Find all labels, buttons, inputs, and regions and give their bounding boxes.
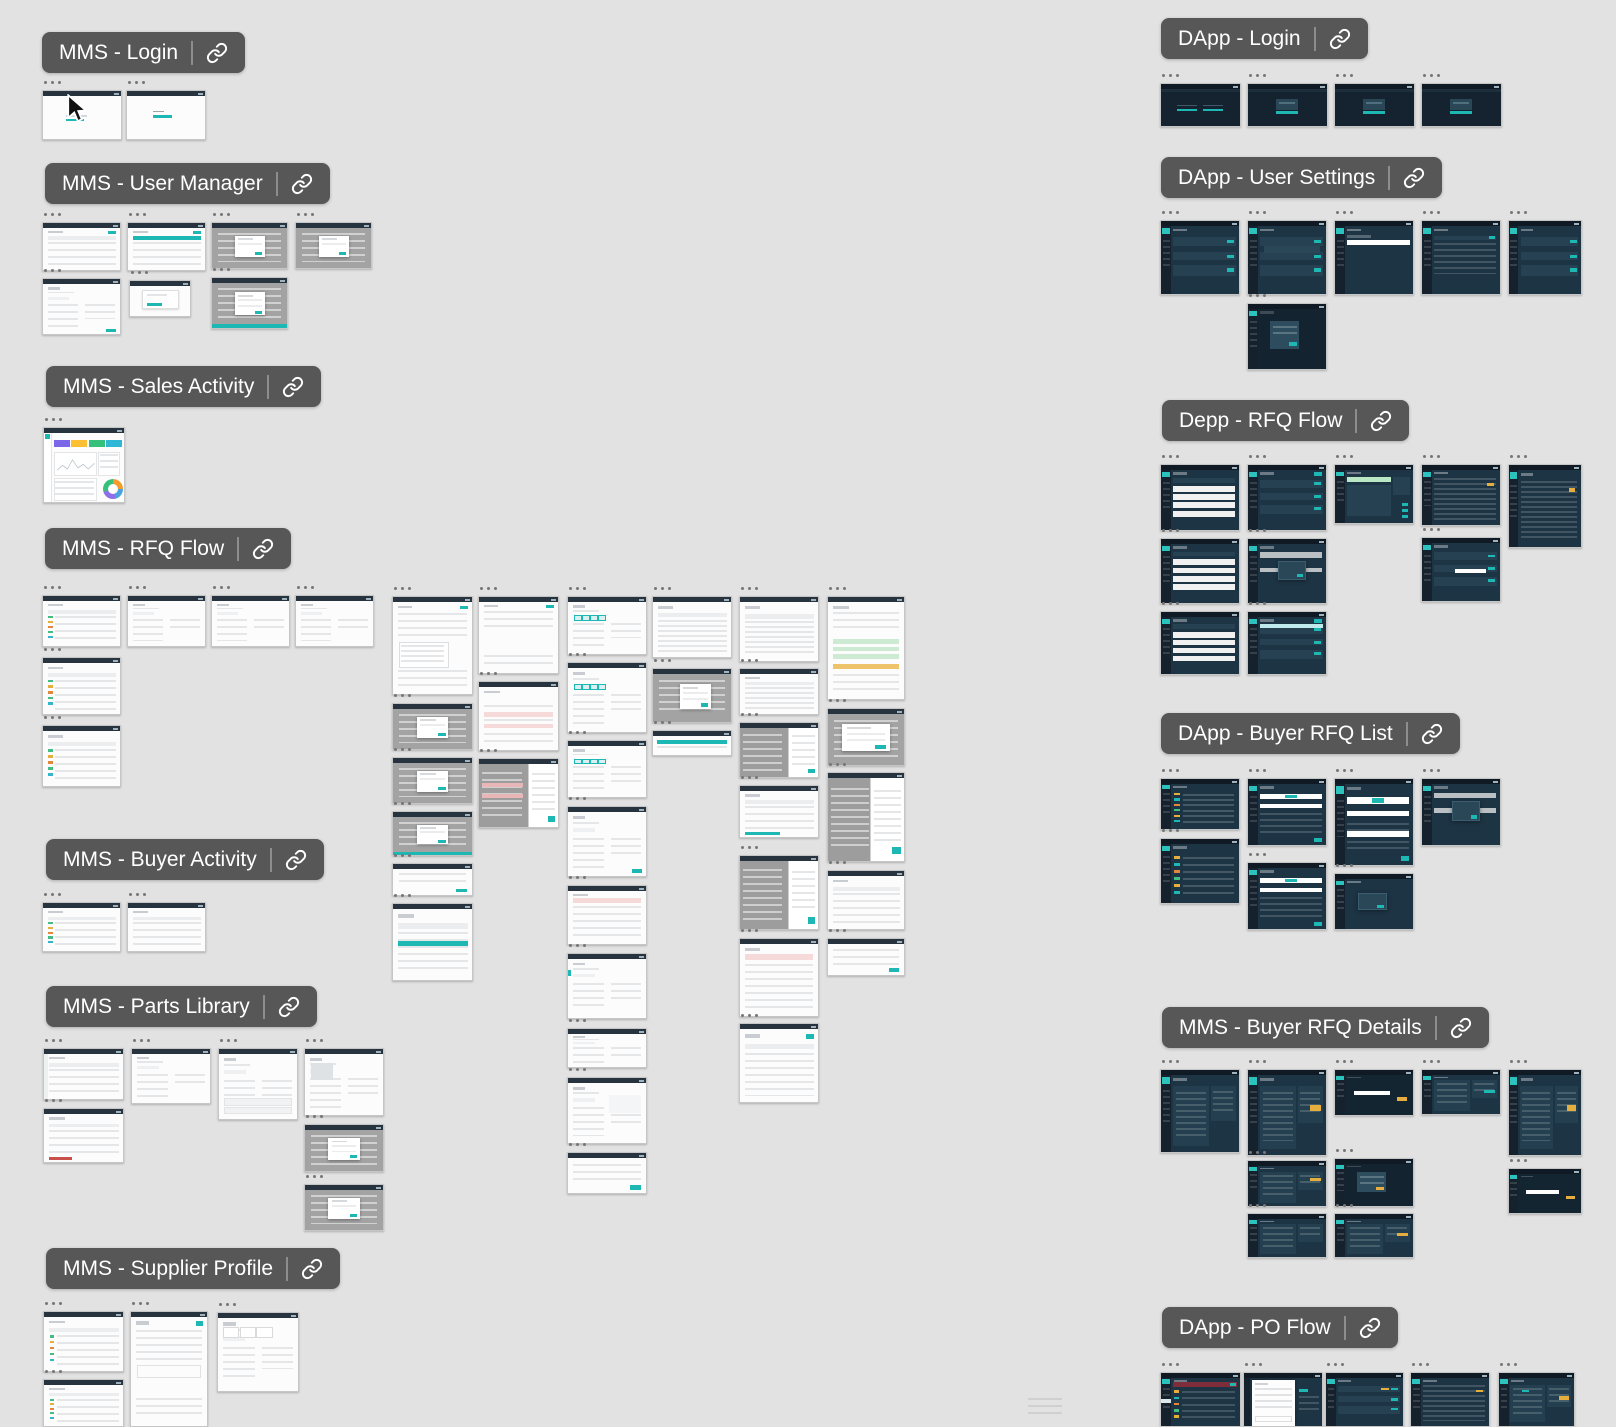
screen-thumbnail[interactable] bbox=[1508, 1069, 1582, 1156]
screen-thumbnail[interactable] bbox=[567, 740, 647, 798]
screen-thumbnail[interactable] bbox=[42, 595, 121, 647]
frame-title-dots[interactable] bbox=[306, 1115, 323, 1118]
link-icon[interactable] bbox=[1359, 1317, 1381, 1339]
link-icon[interactable] bbox=[301, 1258, 323, 1280]
frame-title-dots[interactable] bbox=[480, 672, 497, 675]
frame-title-dots[interactable] bbox=[133, 1039, 150, 1042]
frame-title-dots[interactable] bbox=[1423, 211, 1440, 214]
screen-thumbnail[interactable] bbox=[739, 855, 819, 930]
frame-title-dots[interactable] bbox=[654, 721, 671, 724]
screen-thumbnail[interactable] bbox=[567, 1152, 647, 1194]
frame-title-dots[interactable] bbox=[1162, 769, 1179, 772]
screen-thumbnail[interactable] bbox=[211, 222, 288, 269]
section-label-pill[interactable]: MMS - User Manager bbox=[45, 163, 330, 204]
dot bbox=[1343, 1204, 1346, 1207]
frame-title-dots[interactable] bbox=[213, 268, 230, 271]
screen-thumbnail[interactable] bbox=[739, 1023, 819, 1103]
deco bbox=[1182, 1391, 1235, 1393]
frame-title-dots[interactable] bbox=[569, 1019, 586, 1022]
screen-thumbnail[interactable] bbox=[127, 222, 206, 271]
screen-thumbnail[interactable] bbox=[1247, 1160, 1327, 1207]
frame-title-dots[interactable] bbox=[569, 1068, 586, 1071]
screen-thumbnail[interactable] bbox=[295, 595, 374, 647]
screen-thumbnail[interactable] bbox=[1334, 1069, 1414, 1116]
screen-thumbnail[interactable] bbox=[567, 953, 647, 1019]
frame-title-dots[interactable] bbox=[1249, 529, 1266, 532]
section-label-pill[interactable]: Depp - RFQ Flow bbox=[1162, 400, 1409, 441]
screen-thumbnail[interactable] bbox=[1160, 838, 1240, 904]
frame-title-dots[interactable] bbox=[394, 587, 411, 590]
screen-thumbnail[interactable] bbox=[43, 1379, 124, 1427]
screen-thumbnail[interactable] bbox=[392, 596, 473, 695]
screen-thumbnail[interactable] bbox=[652, 668, 732, 723]
deco bbox=[657, 740, 727, 743]
screen-thumbnail[interactable] bbox=[1334, 220, 1414, 295]
frame-title-dots[interactable] bbox=[1249, 211, 1266, 214]
frame-title-dots[interactable] bbox=[1162, 529, 1179, 532]
frame-title-dots[interactable] bbox=[741, 587, 758, 590]
frame-title-dots[interactable] bbox=[129, 213, 146, 216]
screen-thumbnail[interactable] bbox=[1247, 778, 1327, 846]
link-icon[interactable] bbox=[1421, 723, 1443, 745]
frame-title-dots[interactable] bbox=[45, 1370, 62, 1373]
frame-title-dots[interactable] bbox=[129, 893, 146, 896]
frame-title-dots[interactable] bbox=[44, 648, 61, 651]
deco bbox=[1347, 1221, 1360, 1223]
frame-title-dots[interactable] bbox=[1336, 455, 1353, 458]
dot bbox=[1249, 1060, 1252, 1063]
frame-title-dots[interactable] bbox=[45, 1302, 62, 1305]
screen-thumbnail[interactable] bbox=[1160, 1372, 1241, 1427]
screen-thumbnail[interactable] bbox=[1247, 303, 1327, 370]
screen-thumbnail[interactable] bbox=[739, 938, 819, 1017]
frame-title-dots[interactable] bbox=[1423, 455, 1440, 458]
screen-thumbnail[interactable] bbox=[1160, 464, 1240, 531]
screen-thumbnail[interactable] bbox=[295, 222, 372, 269]
frame-title-dots[interactable] bbox=[44, 213, 61, 216]
deco bbox=[1452, 801, 1481, 821]
screen-thumbnail[interactable] bbox=[304, 1124, 384, 1172]
link-icon[interactable] bbox=[291, 173, 313, 195]
frame-title-dots[interactable] bbox=[1249, 1151, 1266, 1154]
frame-title-dots[interactable] bbox=[829, 699, 846, 702]
frame-title-dots[interactable] bbox=[45, 418, 62, 421]
frame-title-dots[interactable] bbox=[394, 748, 411, 751]
dot bbox=[51, 269, 54, 272]
screen-thumbnail[interactable] bbox=[1247, 862, 1327, 930]
screen-thumbnail[interactable] bbox=[567, 885, 647, 945]
section-label-pill[interactable]: DApp - User Settings bbox=[1161, 157, 1442, 198]
screen-thumbnail[interactable] bbox=[1247, 464, 1327, 531]
link-icon[interactable] bbox=[1403, 167, 1425, 189]
screen-thumbnail[interactable] bbox=[1160, 83, 1241, 127]
screen-thumbnail[interactable] bbox=[1325, 1372, 1404, 1427]
screen-thumbnail[interactable] bbox=[43, 1311, 124, 1372]
frame-title-dots[interactable] bbox=[829, 861, 846, 864]
screen-thumbnail[interactable] bbox=[130, 1311, 208, 1427]
screen-thumbnail[interactable] bbox=[1247, 611, 1327, 675]
screen-thumbnail[interactable] bbox=[1243, 1372, 1323, 1427]
dot bbox=[408, 894, 411, 897]
screen-thumbnail[interactable] bbox=[739, 596, 819, 662]
screen-thumbnail[interactable] bbox=[1421, 537, 1501, 602]
frame-title-dots[interactable] bbox=[306, 1175, 323, 1178]
screen-thumbnail[interactable] bbox=[392, 811, 473, 856]
screen-thumbnail[interactable] bbox=[1247, 220, 1327, 295]
dot bbox=[133, 1039, 136, 1042]
screen-thumbnail[interactable] bbox=[127, 595, 206, 647]
dot bbox=[1336, 74, 1339, 77]
frame-title-dots[interactable] bbox=[829, 763, 846, 766]
screen-thumbnail[interactable] bbox=[827, 772, 905, 862]
link-icon[interactable] bbox=[285, 849, 307, 871]
frame-title-dots[interactable] bbox=[220, 1039, 237, 1042]
screen-thumbnail[interactable] bbox=[211, 595, 290, 647]
screen-thumbnail[interactable] bbox=[43, 427, 125, 503]
screen-thumbnail[interactable] bbox=[567, 806, 647, 877]
frame-title-dots[interactable] bbox=[1336, 1204, 1353, 1207]
section-label-pill[interactable]: DApp - Login bbox=[1161, 18, 1368, 59]
link-icon[interactable] bbox=[206, 42, 228, 64]
link-icon[interactable] bbox=[282, 376, 304, 398]
screen-thumbnail[interactable] bbox=[1160, 220, 1240, 295]
screen-thumbnail[interactable] bbox=[42, 278, 121, 335]
dot bbox=[1343, 1060, 1346, 1063]
deco bbox=[1260, 813, 1322, 835]
frame-title-dots[interactable] bbox=[1423, 1060, 1440, 1063]
deco bbox=[1336, 228, 1344, 234]
frame-title-dots[interactable] bbox=[1336, 864, 1353, 867]
screen-thumbnail[interactable] bbox=[1421, 220, 1501, 295]
screen-thumbnail[interactable] bbox=[739, 722, 819, 778]
thumbnail-content bbox=[1248, 784, 1326, 845]
dot bbox=[1437, 455, 1440, 458]
frame-title-dots[interactable] bbox=[1327, 1363, 1344, 1366]
frame-title-dots[interactable] bbox=[45, 1039, 62, 1042]
deco bbox=[1360, 1176, 1384, 1184]
frame-title-dots[interactable] bbox=[1412, 1363, 1429, 1366]
frame-title-dots[interactable] bbox=[44, 893, 61, 896]
frame-title-dots[interactable] bbox=[1162, 1363, 1179, 1366]
deco bbox=[1260, 229, 1273, 232]
link-icon[interactable] bbox=[1370, 410, 1392, 432]
deco bbox=[745, 614, 814, 619]
screen-thumbnail[interactable] bbox=[1334, 1158, 1414, 1207]
screen-thumbnail[interactable] bbox=[127, 902, 206, 952]
dot bbox=[401, 854, 404, 857]
frame-title-dots[interactable] bbox=[297, 586, 314, 589]
screen-thumbnail[interactable] bbox=[42, 657, 121, 715]
deco bbox=[745, 832, 780, 835]
frame-title-dots[interactable] bbox=[569, 731, 586, 734]
screen-thumbnail[interactable] bbox=[42, 902, 121, 952]
screen-thumbnail[interactable] bbox=[1334, 873, 1414, 930]
deco bbox=[262, 1080, 292, 1100]
dot bbox=[1256, 1060, 1259, 1063]
dot bbox=[1514, 1363, 1517, 1366]
frame-title-dots[interactable] bbox=[1162, 602, 1179, 605]
frame-title-dots[interactable] bbox=[1423, 74, 1440, 77]
screen-thumbnail[interactable] bbox=[478, 758, 559, 828]
screen-thumbnail[interactable] bbox=[42, 725, 121, 787]
screen-thumbnail[interactable] bbox=[211, 277, 288, 329]
section-label-pill[interactable]: MMS - Buyer Activity bbox=[46, 839, 324, 880]
frame-title-dots[interactable] bbox=[394, 694, 411, 697]
frame-title-dots[interactable] bbox=[1162, 455, 1179, 458]
frame-title-dots[interactable] bbox=[44, 586, 61, 589]
screen-thumbnail[interactable] bbox=[392, 903, 473, 981]
frame-title-dots[interactable] bbox=[219, 1303, 236, 1306]
frame-title-dots[interactable] bbox=[129, 586, 146, 589]
pill-divider bbox=[270, 848, 272, 872]
frame-title-dots[interactable] bbox=[1249, 294, 1266, 297]
frame-title-dots[interactable] bbox=[44, 81, 61, 84]
frame-title-dots[interactable] bbox=[741, 929, 758, 932]
screen-thumbnail[interactable] bbox=[1334, 464, 1414, 524]
frame-title-dots[interactable] bbox=[306, 1039, 323, 1042]
screen-thumbnail[interactable] bbox=[827, 596, 905, 700]
frame-title-dots[interactable] bbox=[44, 716, 61, 719]
screen-thumbnail[interactable] bbox=[1421, 83, 1502, 127]
deco bbox=[49, 1157, 73, 1160]
screen-thumbnail[interactable] bbox=[1421, 464, 1501, 526]
deco bbox=[1173, 1086, 1209, 1146]
screen-thumbnail[interactable] bbox=[652, 596, 732, 658]
frame-title-dots[interactable] bbox=[1249, 1204, 1266, 1207]
screen-thumbnail[interactable] bbox=[567, 1028, 647, 1068]
screen-thumbnail[interactable] bbox=[217, 1312, 299, 1392]
frame-title-dots[interactable] bbox=[132, 1302, 149, 1305]
screen-thumbnail[interactable] bbox=[1334, 83, 1415, 127]
frame-title-dots[interactable] bbox=[1336, 1060, 1353, 1063]
deco bbox=[1521, 473, 1533, 476]
screen-thumbnail[interactable] bbox=[1421, 778, 1501, 846]
dot bbox=[1336, 769, 1339, 772]
deco bbox=[1248, 89, 1327, 92]
dot bbox=[220, 586, 223, 589]
dot bbox=[843, 587, 846, 590]
frame-title-dots[interactable] bbox=[1510, 1060, 1527, 1063]
frame-title-dots[interactable] bbox=[480, 749, 497, 752]
section-label-pill[interactable]: MMS - Parts Library bbox=[46, 986, 317, 1027]
frame-title-dots[interactable] bbox=[741, 846, 758, 849]
frame-title-dots[interactable] bbox=[394, 802, 411, 805]
deco bbox=[1249, 546, 1257, 551]
thumbnail-content bbox=[653, 674, 731, 722]
link-icon[interactable] bbox=[1450, 1017, 1472, 1039]
deco bbox=[1173, 472, 1186, 474]
frame-title-dots[interactable] bbox=[569, 653, 586, 656]
screen-thumbnail[interactable] bbox=[1247, 1069, 1327, 1156]
section-label: MMS - Supplier Profile bbox=[63, 1256, 273, 1281]
deco bbox=[1173, 640, 1235, 646]
screen-thumbnail[interactable] bbox=[827, 870, 905, 930]
frame-title-dots[interactable] bbox=[1249, 853, 1266, 856]
screen-thumbnail[interactable] bbox=[392, 703, 473, 750]
screen-thumbnail[interactable] bbox=[567, 662, 647, 733]
thumbnail-content bbox=[393, 909, 472, 980]
screen-thumbnail[interactable] bbox=[43, 1108, 124, 1163]
thumbnail-content bbox=[44, 1317, 123, 1371]
frame-title-dots[interactable] bbox=[1423, 528, 1440, 531]
screen-thumbnail[interactable] bbox=[1508, 220, 1582, 295]
frame-title-dots[interactable] bbox=[1162, 74, 1179, 77]
screen-thumbnail[interactable] bbox=[1334, 1213, 1414, 1258]
section-label-pill[interactable]: MMS - Login bbox=[42, 32, 245, 73]
dot bbox=[494, 672, 497, 675]
dot bbox=[59, 1302, 62, 1305]
frame-title-dots[interactable] bbox=[569, 876, 586, 879]
screen-thumbnail[interactable] bbox=[1334, 778, 1414, 866]
screen-thumbnail[interactable] bbox=[567, 1077, 647, 1144]
frame-title-dots[interactable] bbox=[480, 587, 497, 590]
screen-thumbnail[interactable] bbox=[304, 1048, 384, 1116]
dot bbox=[1524, 211, 1527, 214]
deco bbox=[100, 454, 118, 472]
section-label-pill[interactable]: MMS - Buyer RFQ Details bbox=[1162, 1007, 1489, 1048]
dot bbox=[1169, 1060, 1172, 1063]
frame-title-dots[interactable] bbox=[1336, 769, 1353, 772]
frame-title-dots[interactable] bbox=[45, 1099, 62, 1102]
frame-title-dots[interactable] bbox=[131, 271, 148, 274]
frame-title-dots[interactable] bbox=[1423, 769, 1440, 772]
screen-thumbnail[interactable] bbox=[1247, 1213, 1327, 1258]
frame-title-dots[interactable] bbox=[569, 797, 586, 800]
screen-thumbnail[interactable] bbox=[42, 222, 121, 271]
frame-title-dots[interactable] bbox=[394, 854, 411, 857]
screen-thumbnail[interactable] bbox=[478, 681, 559, 751]
link-icon[interactable] bbox=[252, 538, 274, 560]
frame-title-dots[interactable] bbox=[741, 1014, 758, 1017]
dot bbox=[843, 699, 846, 702]
screen-thumbnail[interactable] bbox=[739, 785, 819, 838]
frame-title-dots[interactable] bbox=[1162, 1060, 1179, 1063]
deco bbox=[1174, 1403, 1179, 1405]
frame-title-dots[interactable] bbox=[1249, 1060, 1266, 1063]
screen-thumbnail[interactable] bbox=[129, 280, 191, 317]
frame-title-dots[interactable] bbox=[394, 894, 411, 897]
screen-thumbnail[interactable] bbox=[131, 1048, 211, 1104]
dot bbox=[401, 894, 404, 897]
screen-thumbnail[interactable] bbox=[1498, 1372, 1575, 1427]
pill-divider bbox=[1344, 1316, 1346, 1340]
frame-title-dots[interactable] bbox=[1162, 829, 1179, 832]
screen-thumbnail[interactable] bbox=[1421, 1069, 1501, 1115]
frame-title-dots[interactable] bbox=[1249, 769, 1266, 772]
screen-thumbnail[interactable] bbox=[1247, 83, 1328, 127]
deco bbox=[1314, 838, 1323, 842]
screen-thumbnail[interactable] bbox=[652, 730, 732, 756]
frame-title-dots[interactable] bbox=[654, 659, 671, 662]
screen-thumbnail[interactable] bbox=[478, 596, 559, 674]
deco bbox=[106, 440, 122, 448]
screen-thumbnail[interactable] bbox=[1160, 538, 1240, 604]
frame-title-dots[interactable] bbox=[569, 944, 586, 947]
frame-title-dots[interactable] bbox=[1249, 602, 1266, 605]
section-label-pill[interactable]: DApp - Buyer RFQ List bbox=[1161, 713, 1460, 754]
frame-title-dots[interactable] bbox=[741, 659, 758, 662]
link-icon[interactable] bbox=[1329, 28, 1351, 50]
thumbnail-content bbox=[1509, 1174, 1581, 1213]
screen-thumbnail[interactable] bbox=[1508, 464, 1582, 548]
frame-title-dots[interactable] bbox=[569, 587, 586, 590]
deco bbox=[50, 1408, 55, 1410]
dot bbox=[1343, 864, 1346, 867]
thumbnail-content bbox=[740, 1029, 818, 1102]
frame-title-dots[interactable] bbox=[128, 81, 145, 84]
frame-title-dots[interactable] bbox=[1510, 455, 1527, 458]
frame-title-dots[interactable] bbox=[297, 213, 314, 216]
deco bbox=[1570, 268, 1576, 271]
frame-title-dots[interactable] bbox=[1336, 1149, 1353, 1152]
frame-title-dots[interactable] bbox=[1249, 74, 1266, 77]
frame-title-dots[interactable] bbox=[654, 587, 671, 590]
deco bbox=[223, 1327, 239, 1338]
screen-thumbnail[interactable] bbox=[1160, 778, 1240, 830]
frame-title-dots[interactable] bbox=[1336, 74, 1353, 77]
screen-thumbnail[interactable] bbox=[827, 938, 905, 976]
dot bbox=[836, 929, 839, 932]
frame-title-dots[interactable] bbox=[1510, 211, 1527, 214]
frame-title-dots[interactable] bbox=[44, 269, 61, 272]
frame-title-dots[interactable] bbox=[213, 213, 230, 216]
screen-thumbnail[interactable] bbox=[1247, 538, 1327, 604]
screen-thumbnail[interactable] bbox=[1160, 611, 1240, 675]
thumbnail-content bbox=[479, 687, 558, 750]
frame-title-dots[interactable] bbox=[213, 586, 230, 589]
dot bbox=[1176, 829, 1179, 832]
deco bbox=[1434, 1080, 1470, 1110]
link-icon[interactable] bbox=[278, 996, 300, 1018]
frame-title-dots[interactable] bbox=[569, 1143, 586, 1146]
screen-thumbnail[interactable] bbox=[43, 1048, 124, 1100]
screen-thumbnail[interactable] bbox=[1410, 1372, 1490, 1427]
section-label-pill[interactable]: MMS - Supplier Profile bbox=[46, 1248, 340, 1289]
screen-thumbnail[interactable] bbox=[392, 863, 473, 896]
frame-title-dots[interactable] bbox=[1162, 211, 1179, 214]
dot bbox=[1343, 74, 1346, 77]
section-label-pill[interactable]: MMS - RFQ Flow bbox=[45, 528, 291, 569]
screen-thumbnail[interactable] bbox=[392, 757, 473, 804]
frame-title-dots[interactable] bbox=[829, 587, 846, 590]
screen-thumbnail[interactable] bbox=[827, 708, 905, 766]
section-label-pill[interactable]: DApp - PO Flow bbox=[1162, 1307, 1398, 1348]
deco bbox=[1260, 804, 1322, 808]
frame-title-dots[interactable] bbox=[829, 929, 846, 932]
section-label-pill[interactable]: MMS - Sales Activity bbox=[46, 366, 321, 407]
dot bbox=[45, 418, 48, 421]
deco bbox=[1260, 870, 1273, 872]
screen-thumbnail[interactable] bbox=[126, 90, 206, 140]
dot bbox=[1169, 829, 1172, 832]
frame-title-dots[interactable] bbox=[1245, 1363, 1262, 1366]
deco bbox=[136, 1330, 203, 1361]
frame-title-dots[interactable] bbox=[1510, 1159, 1527, 1162]
deco bbox=[1183, 885, 1235, 887]
screen-thumbnail[interactable] bbox=[304, 1184, 384, 1231]
deco bbox=[1163, 482, 1170, 509]
screen-thumbnail[interactable] bbox=[218, 1048, 298, 1120]
frame-title-dots[interactable] bbox=[1249, 455, 1266, 458]
screen-thumbnail[interactable] bbox=[1160, 1069, 1240, 1153]
screen-thumbnail[interactable] bbox=[739, 668, 819, 715]
frame-title-dots[interactable] bbox=[1500, 1363, 1517, 1366]
frame-title-dots[interactable] bbox=[741, 776, 758, 779]
screen-thumbnail[interactable] bbox=[1508, 1168, 1582, 1214]
frame-title-dots[interactable] bbox=[1336, 211, 1353, 214]
screen-thumbnail[interactable] bbox=[567, 596, 647, 655]
frame-title-dots[interactable] bbox=[741, 713, 758, 716]
